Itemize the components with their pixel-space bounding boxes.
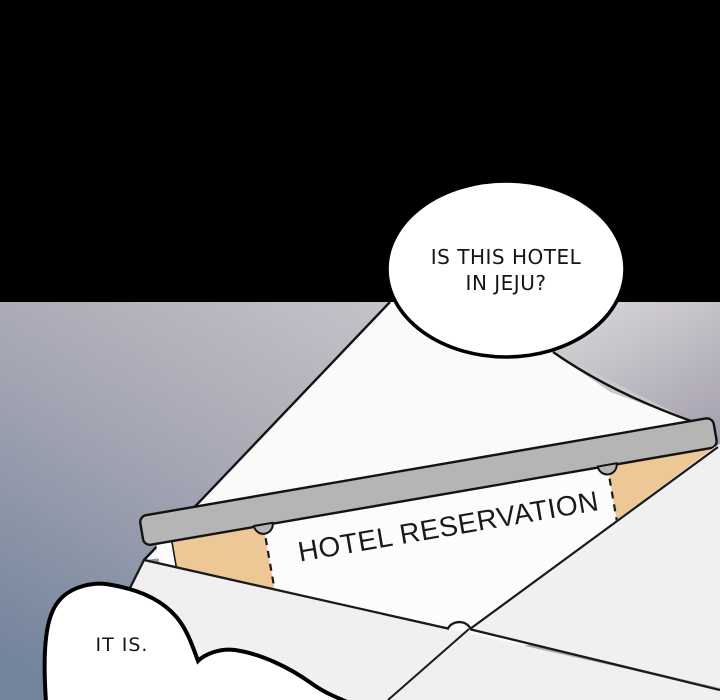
comic-panel-svg: HOTEL RESERVATION IT IS. IS THIS HOTEL I… xyxy=(0,0,720,700)
answer-text: IT IS. xyxy=(96,634,149,656)
speech-bubble-question: IS THIS HOTEL IN JEJU? xyxy=(387,181,625,357)
comic-panel: HOTEL RESERVATION IT IS. IS THIS HOTEL I… xyxy=(0,0,720,700)
question-text-line1: IS THIS HOTEL xyxy=(431,245,582,269)
question-text-line2: IN JEJU? xyxy=(466,271,547,295)
